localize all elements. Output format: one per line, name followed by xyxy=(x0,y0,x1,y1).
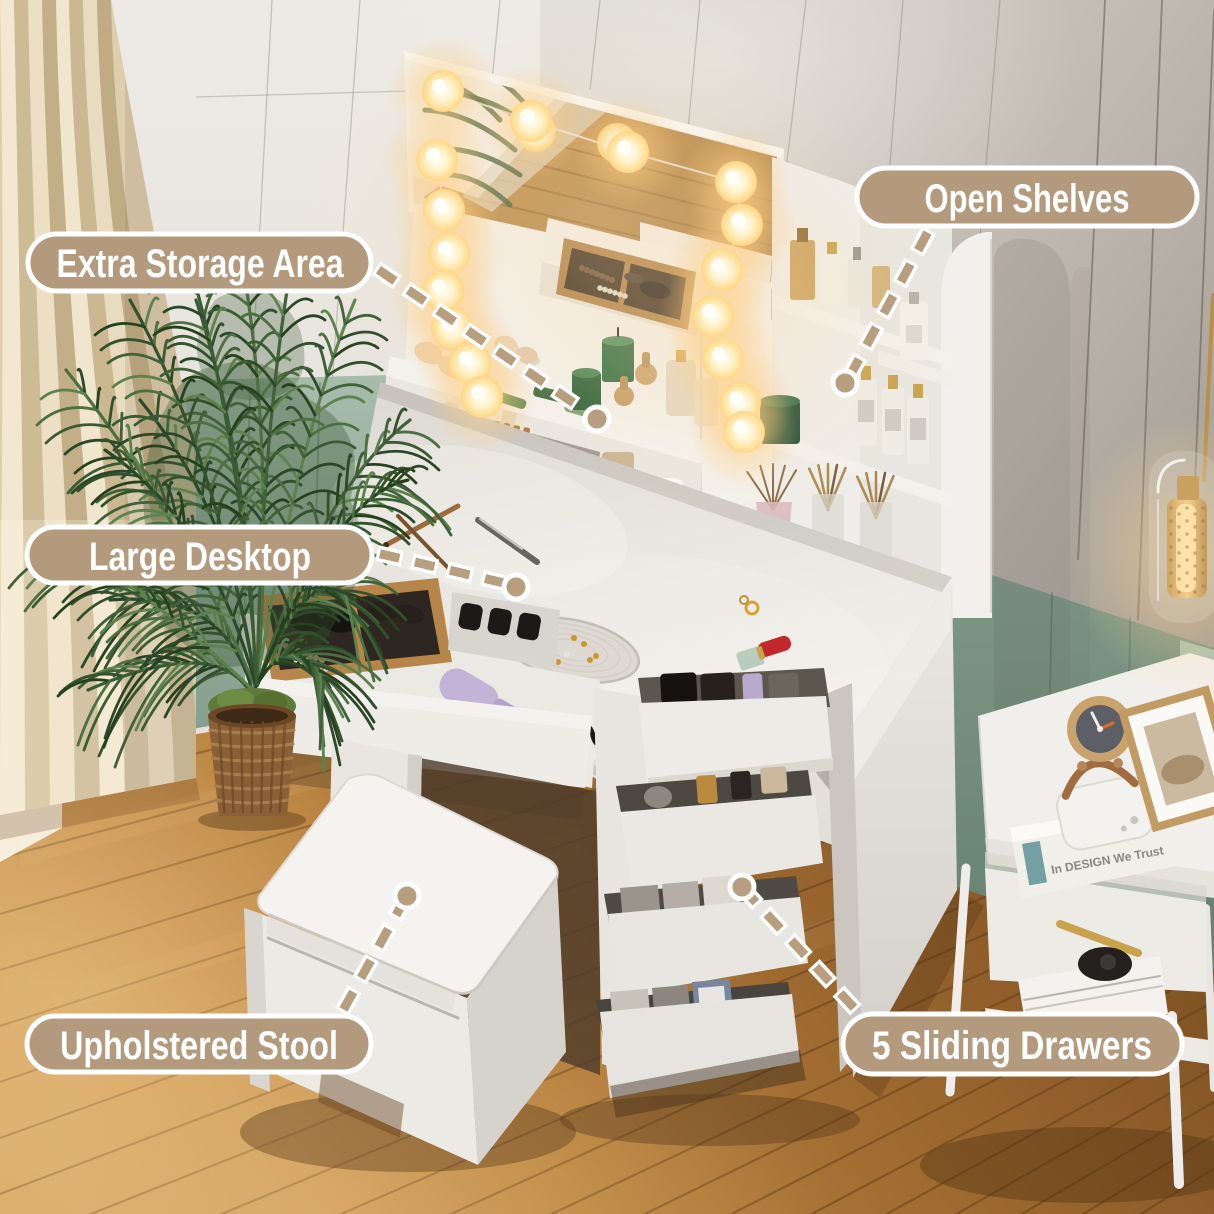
svg-text:Large Desktop: Large Desktop xyxy=(89,535,311,579)
svg-text:Extra Storage Area: Extra Storage Area xyxy=(57,242,345,286)
svg-text:5 Sliding Drawers: 5 Sliding Drawers xyxy=(872,1024,1152,1068)
svg-text:Upholstered Stool: Upholstered Stool xyxy=(60,1024,338,1068)
svg-text:Open Shelves: Open Shelves xyxy=(925,177,1130,221)
